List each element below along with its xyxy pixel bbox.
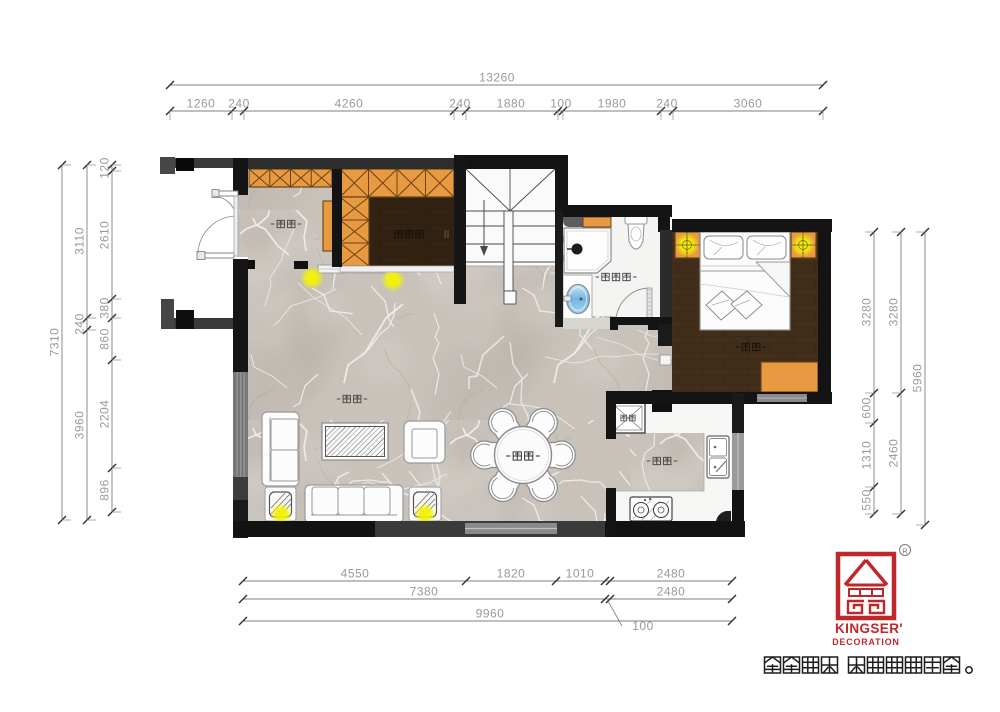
svg-text:120: 120 [98,157,112,179]
svg-text:860: 860 [98,328,112,350]
svg-text:3280: 3280 [887,298,901,327]
svg-text:1980: 1980 [598,97,627,111]
svg-text:2480: 2480 [657,585,686,599]
svg-text:2480: 2480 [657,567,686,581]
svg-text:7380: 7380 [410,585,439,599]
svg-text:13260: 13260 [479,71,515,85]
svg-text:550: 550 [860,489,874,511]
svg-text:380: 380 [98,297,112,319]
svg-text:896: 896 [98,479,112,501]
svg-text:7310: 7310 [48,328,62,357]
svg-text:1010: 1010 [566,567,595,581]
svg-text:5960: 5960 [911,364,925,393]
svg-text:3280: 3280 [860,298,874,327]
svg-text:4260: 4260 [335,97,364,111]
svg-text:KINGSER': KINGSER' [835,621,903,636]
svg-text:100: 100 [632,619,654,633]
svg-text:9960: 9960 [476,607,505,621]
svg-text:100: 100 [550,97,572,111]
svg-text:1820: 1820 [497,567,526,581]
svg-text:3060: 3060 [734,97,763,111]
svg-text:2460: 2460 [887,439,901,468]
svg-text:DECORATION: DECORATION [832,637,899,647]
svg-text:3960: 3960 [73,411,87,440]
svg-text:600: 600 [860,397,874,419]
svg-text:240: 240 [656,97,678,111]
svg-text:3110: 3110 [73,227,87,255]
svg-text:240: 240 [73,313,87,335]
svg-text:2204: 2204 [98,400,112,429]
svg-text:R: R [902,547,908,556]
svg-text:1880: 1880 [497,97,526,111]
svg-text:4550: 4550 [341,567,370,581]
svg-text:1310: 1310 [860,441,874,470]
svg-text:1260: 1260 [187,97,216,111]
svg-text:2610: 2610 [98,221,112,250]
svg-text:240: 240 [228,97,250,111]
svg-text:240: 240 [449,97,471,111]
